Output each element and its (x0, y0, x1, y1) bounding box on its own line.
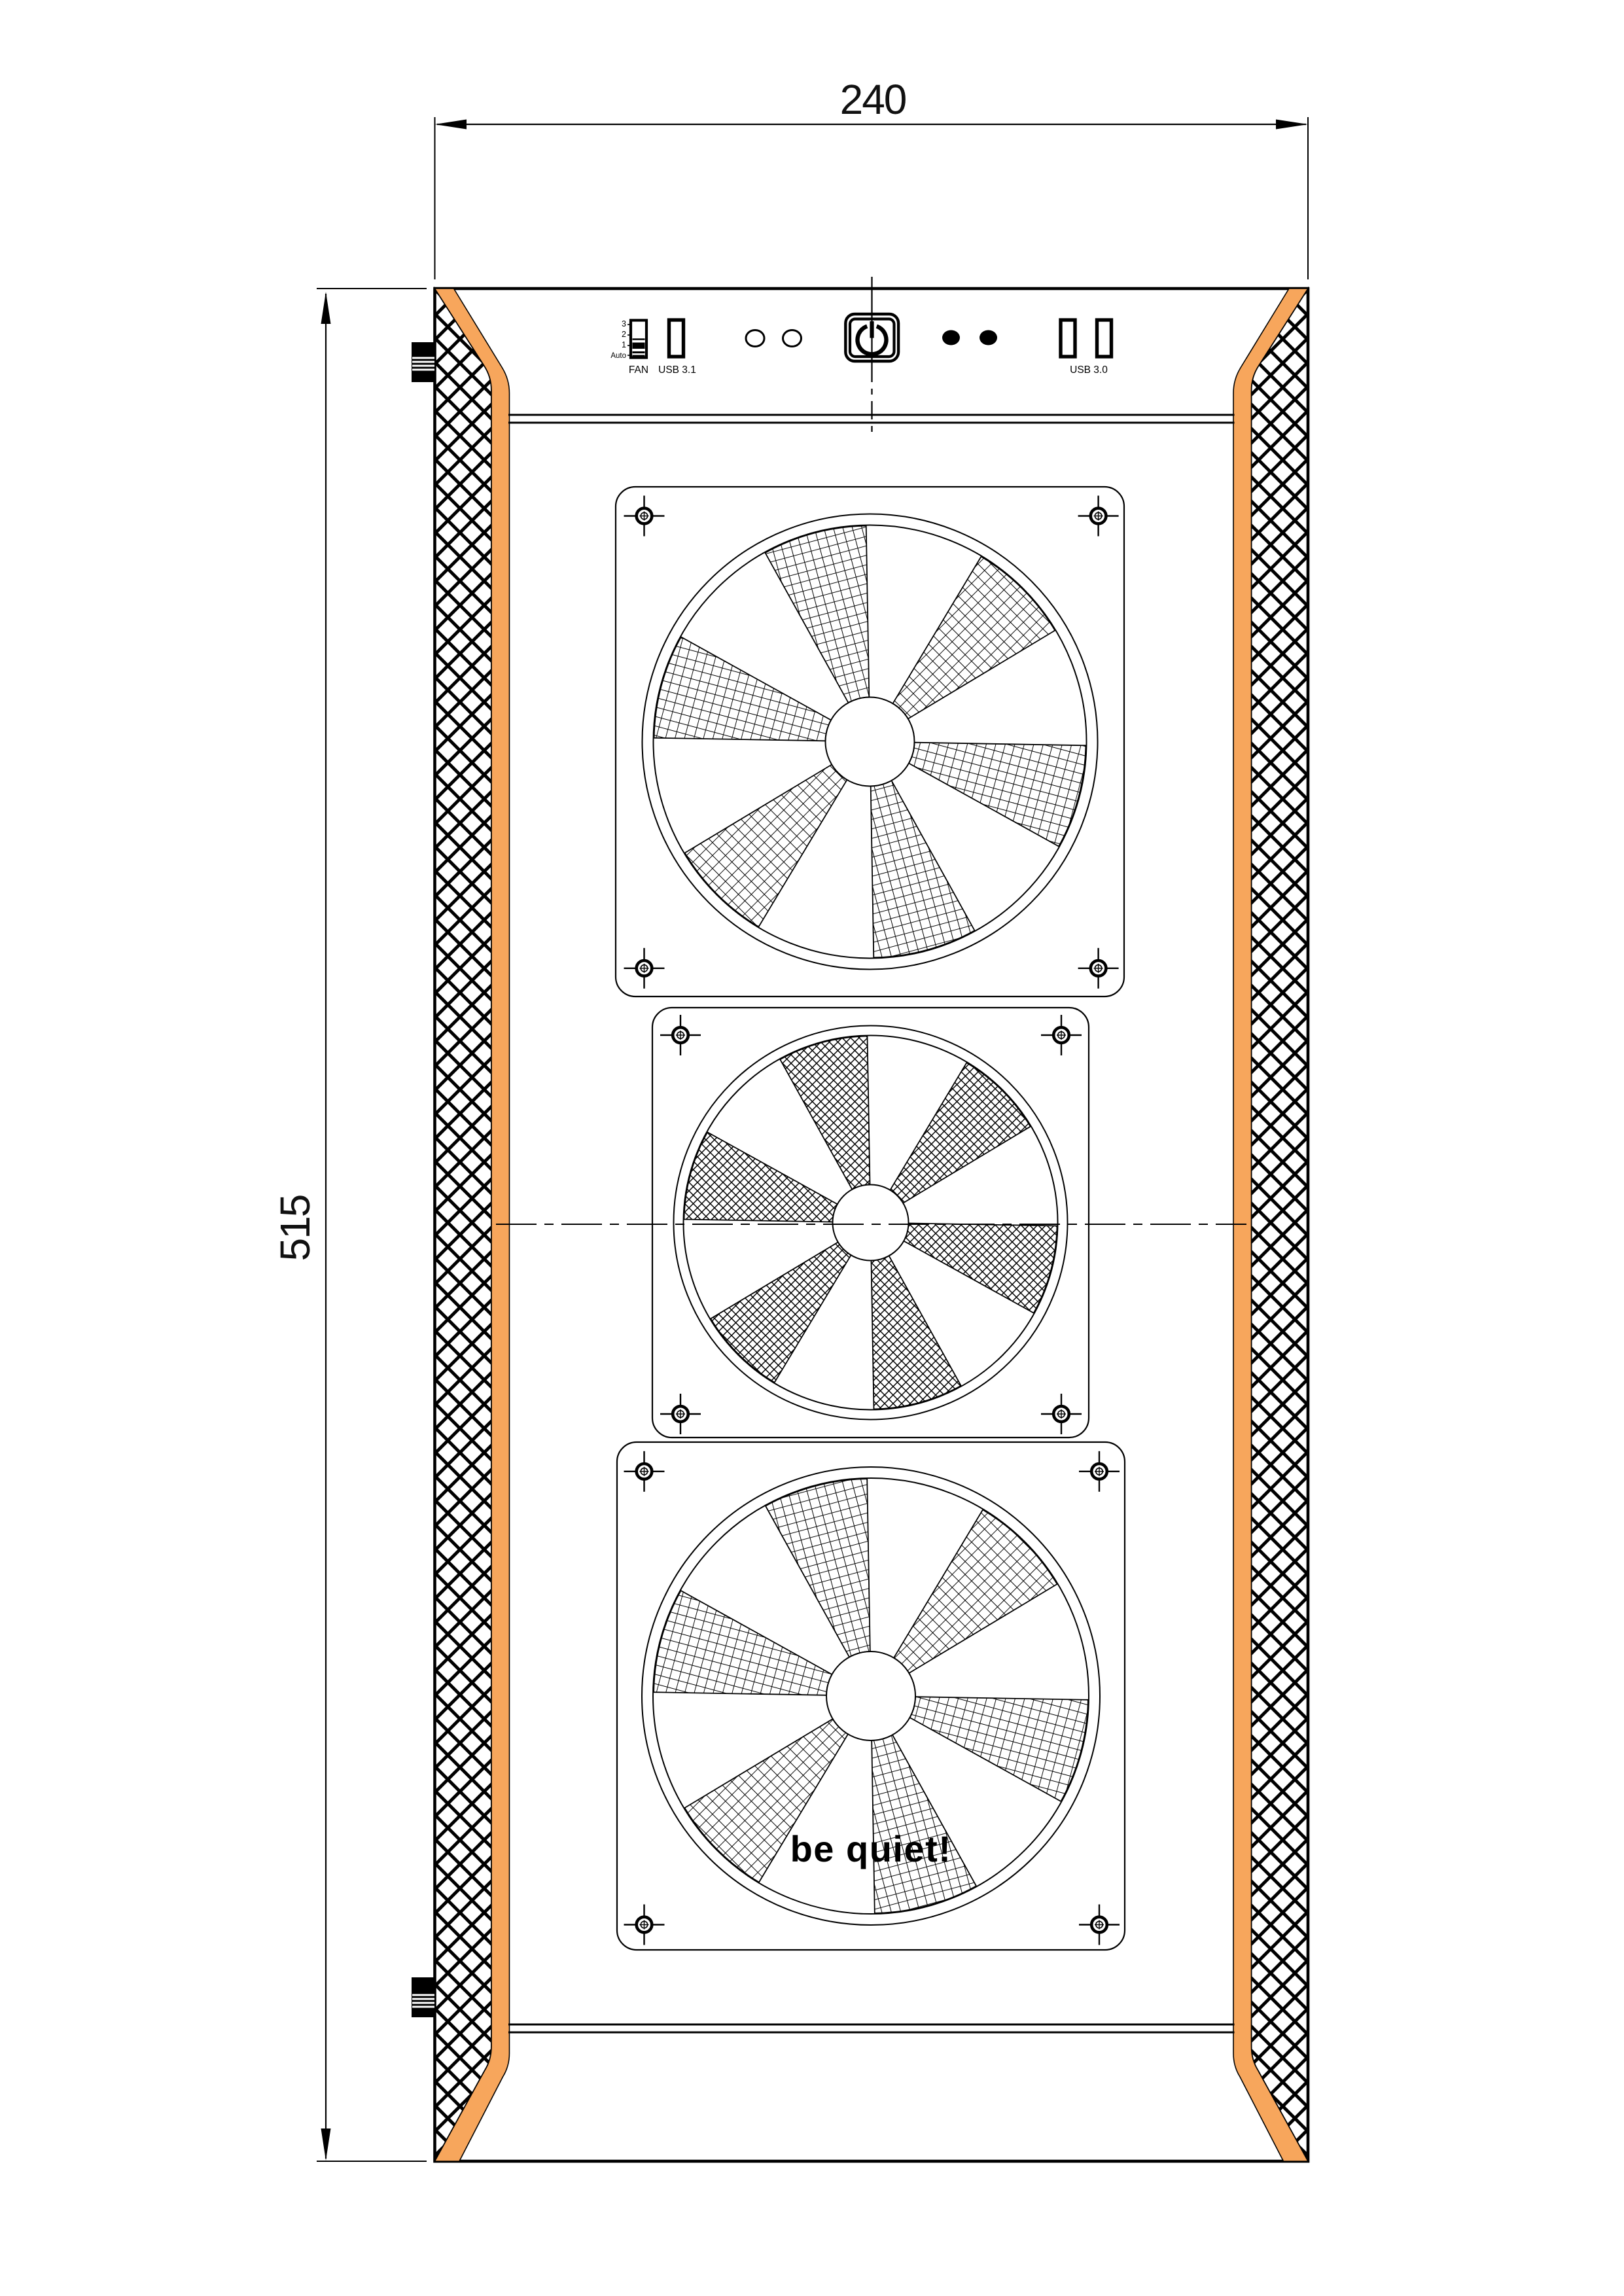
svg-text:2: 2 (622, 330, 626, 339)
svg-text:USB 3.1: USB 3.1 (658, 364, 696, 376)
svg-text:be quiet!: be quiet! (790, 1828, 952, 1869)
svg-text:USB 3.0: USB 3.0 (1070, 364, 1108, 376)
svg-text:1: 1 (622, 340, 626, 349)
svg-text:Auto: Auto (610, 352, 626, 360)
svg-text:515: 515 (272, 1195, 319, 1262)
svg-text:3: 3 (622, 319, 626, 328)
svg-text:FAN: FAN (629, 364, 648, 376)
svg-text:240: 240 (840, 76, 906, 123)
